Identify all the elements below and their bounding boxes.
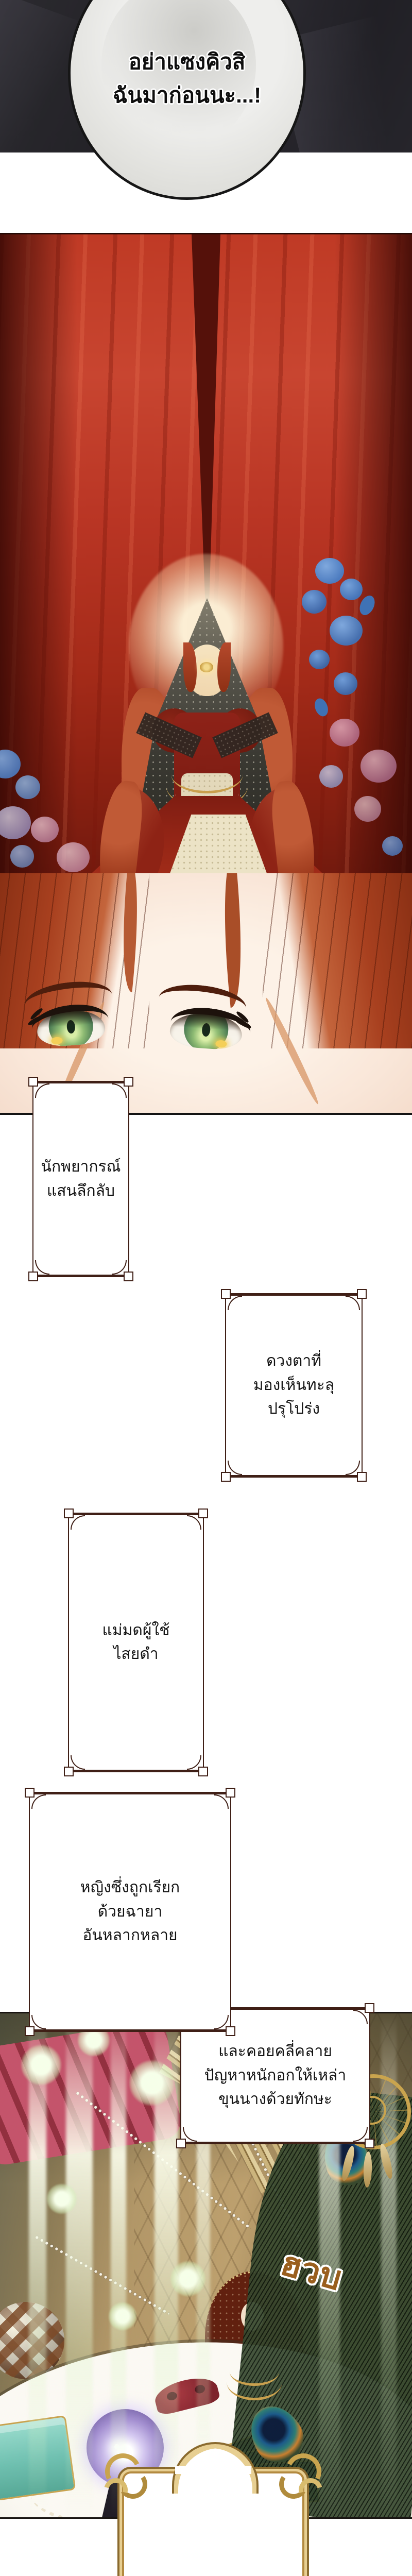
narration-line: ดวงตาที่ (266, 1349, 321, 1374)
blue-rose (340, 579, 363, 600)
blue-rose (302, 590, 327, 614)
woman-gold-chain (227, 2364, 282, 2400)
narration-box-3: แม่มดผู้ใช้ ไสยดำ (68, 1513, 204, 1772)
hair-mass-right (263, 873, 412, 1048)
narration-line: หญิงซึ่งถูกเรียก (80, 1876, 180, 1900)
panel-curtain-stage (0, 233, 412, 875)
narration-box-4: หญิงซึ่งถูกเรียก ด้วยฉายา อันหลากหลาย (29, 1792, 231, 2032)
box-corner (64, 1767, 74, 1776)
narration-line: ขุนนางด้วยทักษะ (218, 2088, 332, 2112)
speech-text-queue: อย่าแซงคิวสิ ฉันมาก่อนนะ...! (71, 45, 303, 112)
candle-glow-orb (129, 2060, 175, 2106)
box-corner (357, 1289, 367, 1299)
box-corner (198, 1767, 208, 1776)
narration-line: ด้วยฉายา (98, 1900, 163, 1924)
curtain-shadow-left (0, 234, 77, 873)
candle-glow-orb (46, 2183, 77, 2214)
narration-line: แสนลึกลับ (47, 1179, 115, 1204)
blue-rose (15, 775, 40, 799)
box-corner (365, 2139, 374, 2148)
pale-rose (319, 765, 343, 788)
speech-bubble-queue: อย่าแซงคิวสิ ฉันมาก่อนนะ...! (68, 0, 306, 200)
box-corner (28, 1272, 38, 1281)
box-corner (198, 1509, 208, 1518)
box-corner (226, 1788, 235, 1798)
box-corner (25, 2026, 35, 2036)
box-corner (124, 1077, 133, 1087)
box-corner (226, 2026, 235, 2036)
blue-rose (334, 672, 357, 695)
light-streak (111, 2013, 126, 2517)
narration-box-2: ดวงตาที่ มองเห็นทะลุ ปรุโปร่ง (225, 1293, 363, 1478)
candle-glow-orb (21, 2044, 62, 2086)
narration-box-1: นักพยากรณ์ แสนลึกลับ (32, 1081, 129, 1277)
narration-line: ปัญหาหนักอกให้เหล่า (204, 2064, 347, 2088)
eye-right (169, 1012, 243, 1051)
box-corner (28, 1077, 38, 1087)
box-corner (124, 1272, 133, 1281)
candle-glow-orb (108, 2302, 137, 2331)
pink-rose (31, 817, 59, 842)
comic-page: อย่าแซงคิวสิ ฉันมาก่อนนะ...! (0, 0, 412, 2576)
pink-rose (57, 842, 90, 872)
light-streak (29, 2013, 46, 2517)
pink-rose (354, 796, 381, 822)
box-corner (365, 2003, 374, 2013)
panel-eyes-closeup (0, 873, 412, 1115)
veil-gold-ornament (200, 662, 213, 672)
blue-rose (315, 558, 344, 584)
narration-line: มองเห็นทะลุ (253, 1374, 334, 1398)
plaque-text: เธอผู้นั้นคือ ‘ลา นัวร์’ ... (117, 2467, 309, 2576)
light-streak (66, 2013, 93, 2517)
box-corner (221, 1289, 231, 1299)
pink-rose (330, 719, 359, 747)
blue-rose (10, 845, 34, 868)
narration-line: และคอยคลี่คลาย (218, 2040, 332, 2064)
box-corner (25, 1788, 35, 1798)
narration-line: แม่มดผู้ใช้ (102, 1619, 170, 1643)
speech-line: ฉันมาก่อนนะ...! (71, 78, 303, 112)
speech-line: อย่าแซงคิวสิ (71, 45, 303, 78)
narration-line: ปรุโปร่ง (268, 1397, 320, 1421)
narration-line: นักพยากรณ์ (41, 1155, 121, 1179)
hair-strand-center-right (214, 873, 251, 1008)
blue-rose (382, 836, 403, 856)
box-corner (221, 1472, 231, 1482)
eye-left (36, 1009, 106, 1047)
blue-rose (309, 650, 330, 669)
box-corner (176, 2139, 186, 2148)
box-corner (64, 1509, 74, 1518)
narration-line: อันหลากหลาย (82, 1924, 177, 1948)
blue-rose (330, 616, 363, 646)
hair-strands (263, 873, 412, 1048)
narration-line: ไสยดำ (113, 1642, 158, 1667)
pink-rose (360, 750, 397, 783)
candle-glow-orb (170, 2261, 206, 2297)
gold-plaque: เธอผู้นั้นคือ ‘ลา นัวร์’ ... (117, 2467, 309, 2576)
box-corner (357, 1472, 367, 1482)
